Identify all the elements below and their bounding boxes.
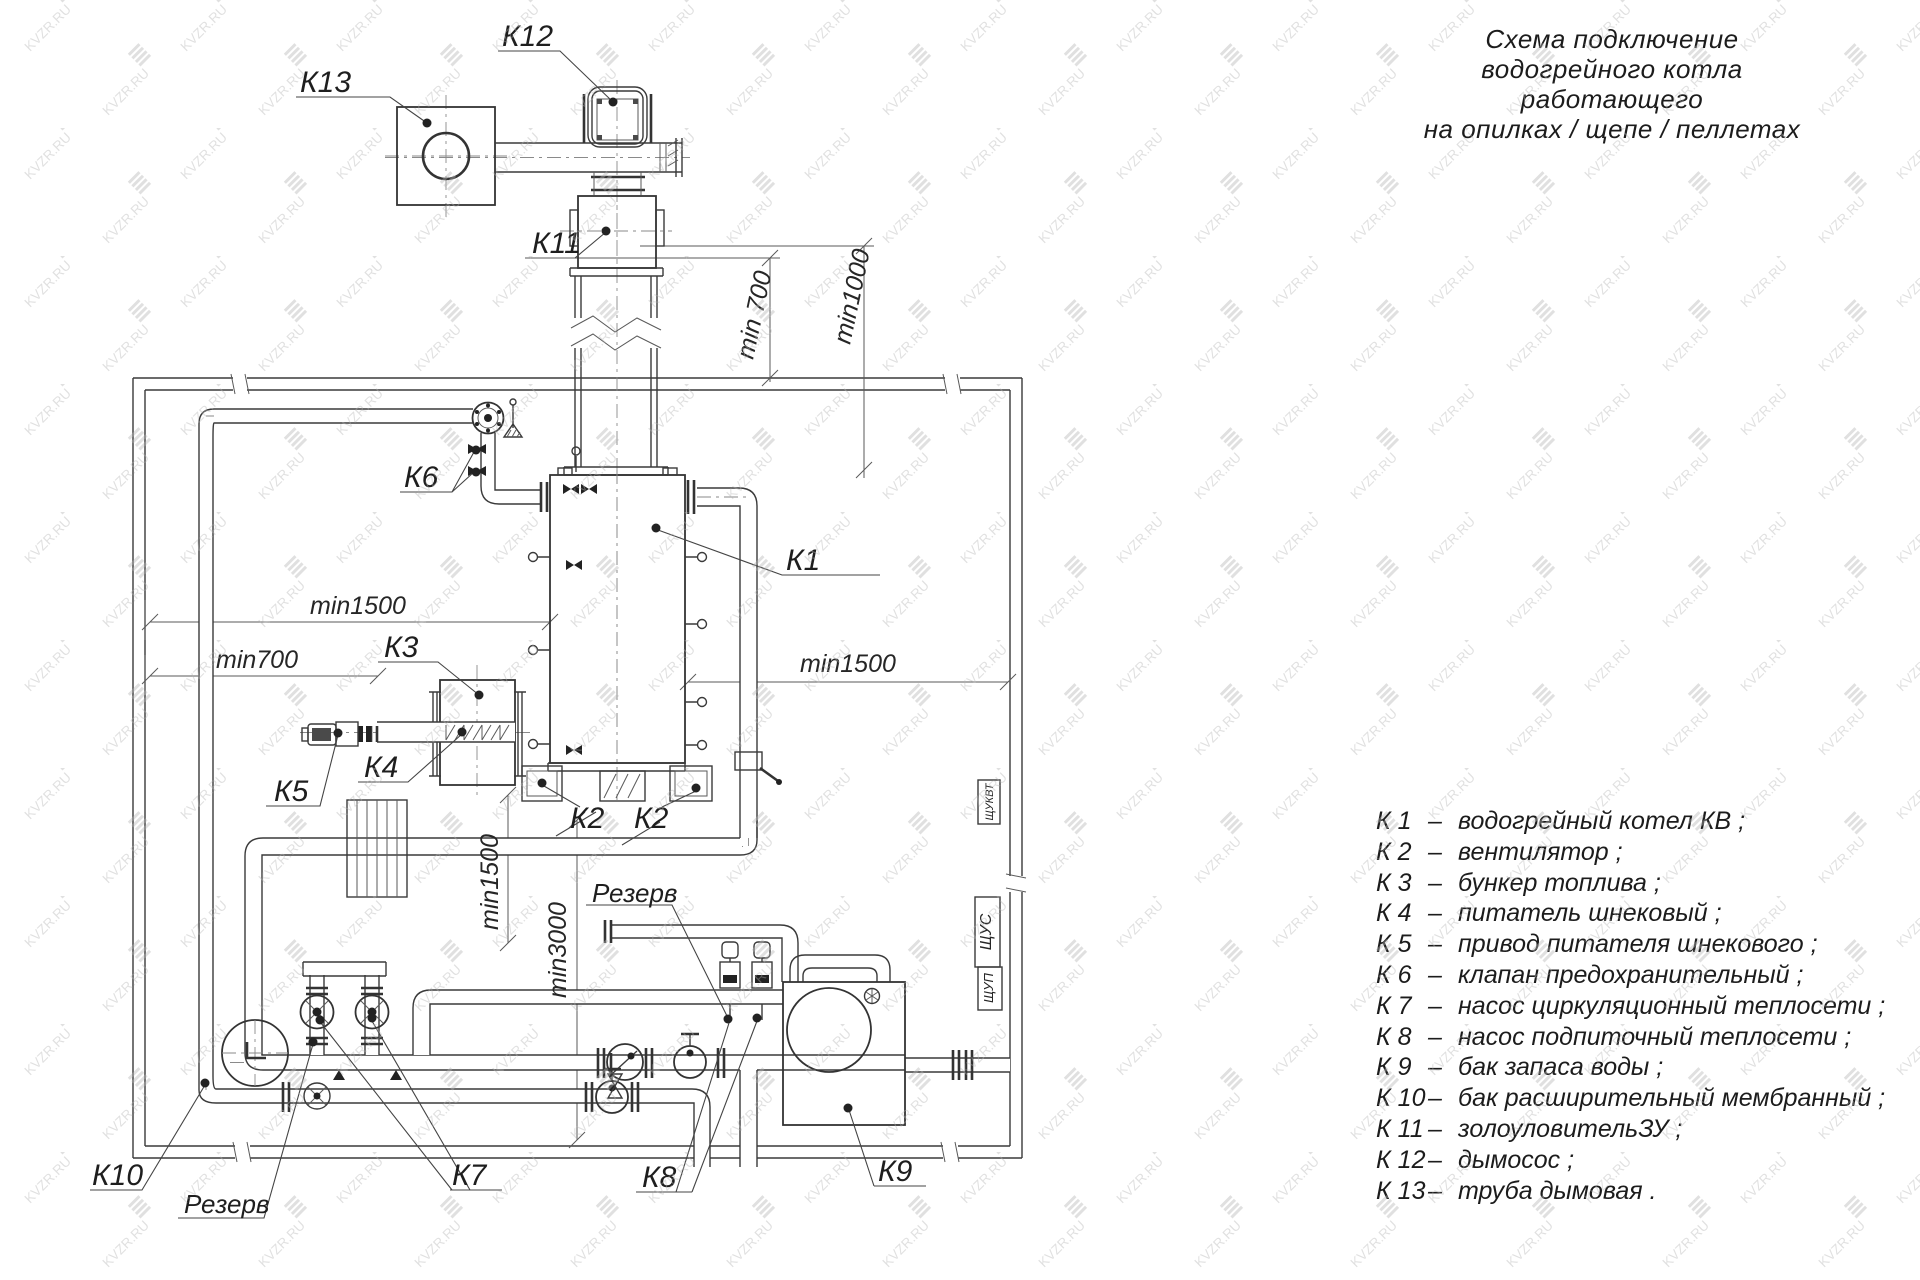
cabinet-shchukvt-label: ЩУКВТ (984, 782, 996, 820)
legend-item-k13: К 13–труба дымовая . (1376, 1176, 1896, 1207)
label-k8: К8 (642, 1161, 677, 1194)
label-k2-right: К2 (634, 802, 669, 835)
legend-id: К 3 (1376, 868, 1428, 899)
label-k11: К11 (532, 227, 581, 260)
legend-dash: – (1428, 837, 1458, 868)
legend-dash: – (1428, 1052, 1458, 1083)
dimension-lines (142, 238, 1016, 1148)
label-k12: К12 (502, 20, 553, 53)
legend-text: клапан предохранительный ; (1458, 960, 1803, 991)
legend-item-k7: К 7–насос циркуляционный теплосети ; (1376, 991, 1896, 1022)
legend-item-k11: К 11–золоуловительЗУ ; (1376, 1114, 1896, 1145)
legend-id: К 5 (1376, 929, 1428, 960)
label-k10: К10 (92, 1159, 143, 1192)
drawing-title: Схема подключение водогрейного котла раб… (1392, 24, 1832, 144)
legend-dash: – (1428, 929, 1458, 960)
label-k6: К6 (404, 461, 439, 494)
legend-id: К 2 (1376, 837, 1428, 868)
legend-text: золоуловительЗУ ; (1458, 1114, 1682, 1145)
legend-item-k1: К 1–водогрейный котел КВ ; (1376, 806, 1896, 837)
water-tank-k9 (783, 982, 905, 1125)
title-line-1: Схема подключение (1392, 24, 1832, 54)
dim-min1500-vert: min1500 (476, 834, 504, 930)
legend-text: бак расширительный мембранный ; (1458, 1083, 1885, 1114)
legend-text: бункер топлива ; (1458, 868, 1661, 899)
legend-item-k8: К 8–насос подпиточный теплосети ; (1376, 1022, 1896, 1053)
label-k9: К9 (878, 1155, 913, 1188)
legend-text: питатель шнековый ; (1458, 898, 1722, 929)
legend-text: насос циркуляционный теплосети ; (1458, 991, 1885, 1022)
legend-item-k3: К 3–бункер топлива ; (1376, 868, 1896, 899)
legend-item-k5: К 5–привод питателя шнекового ; (1376, 929, 1896, 960)
legend-id: К 6 (1376, 960, 1428, 991)
cabinet-shchup-label: ЩУП (981, 973, 996, 1003)
legend-dash: – (1428, 1083, 1458, 1114)
legend-id: К 1 (1376, 806, 1428, 837)
legend-text: труба дымовая . (1458, 1176, 1657, 1207)
dim-min1500-right: min1500 (800, 650, 896, 678)
label-k13: К13 (300, 66, 351, 99)
legend-dash: – (1428, 991, 1458, 1022)
legend-text: насос подпиточный теплосети ; (1458, 1022, 1851, 1053)
room-walls (133, 374, 1026, 1162)
legend-item-k12: К 12–дымосос ; (1376, 1145, 1896, 1176)
legend-id: К 10 (1376, 1083, 1428, 1114)
legend-item-k10: К 10–бак расширительный мембранный ; (1376, 1083, 1896, 1114)
dim-min1500-left: min1500 (310, 592, 406, 620)
legend-dash: – (1428, 1145, 1458, 1176)
cabinets: ЩУКВТ ЩУС ЩУП (975, 780, 1002, 1010)
legend-id: К 12 (1376, 1145, 1428, 1176)
legend-id: К 11 (1376, 1114, 1428, 1145)
pump-valve-cluster (283, 942, 772, 1113)
legend-text: водогрейный котел КВ ; (1458, 806, 1745, 837)
label-k3: К3 (384, 631, 419, 664)
label-k2-left: К2 (570, 802, 605, 835)
label-k1: К1 (786, 544, 820, 577)
label-k5: К5 (274, 775, 309, 808)
dim-min700-left: min700 (216, 646, 298, 674)
label-reserve-mid: Резерв (592, 878, 678, 908)
legend-dash: – (1428, 1022, 1458, 1053)
leader-lines (90, 51, 926, 1218)
boiler-k1 (522, 447, 712, 801)
legend-text: привод питателя шнекового ; (1458, 929, 1818, 960)
dim-min3000-vert: min3000 (544, 902, 572, 998)
title-line-3: на опилках / щепе / пеллетах (1392, 114, 1832, 144)
legend-id: К 8 (1376, 1022, 1428, 1053)
diagram-labels: К13 К12 К11 К1 К6 К3 К4 К5 К2 К2 К7 К8 К… (92, 20, 913, 1219)
expansion-tank-k10 (222, 1020, 288, 1086)
legend-id: К 13 (1376, 1176, 1428, 1207)
legend-dash: – (1428, 898, 1458, 929)
cabinet-shchus-label: ЩУС (978, 913, 995, 950)
legend: К 1–водогрейный котел КВ ; К 2–вентилято… (1376, 806, 1896, 1206)
legend-id: К 9 (1376, 1052, 1428, 1083)
label-k7: К7 (452, 1159, 488, 1192)
label-reserve-bottom: Резерв (184, 1189, 270, 1219)
legend-id: К 4 (1376, 898, 1428, 929)
legend-item-k2: К 2–вентилятор ; (1376, 837, 1896, 868)
dim-min1000-top: min1000 (828, 247, 875, 347)
legend-text: вентилятор ; (1458, 837, 1623, 868)
legend-dash: – (1428, 806, 1458, 837)
legend-text: бак запаса воды ; (1458, 1052, 1663, 1083)
legend-id: К 7 (1376, 991, 1428, 1022)
legend-item-k9: К 9–бак запаса воды ; (1376, 1052, 1896, 1083)
legend-dash: – (1428, 868, 1458, 899)
boiler-connection-scheme: ЩУКВТ ЩУС ЩУП (0, 0, 1920, 1280)
title-line-2: водогрейного котла работающего (1392, 54, 1832, 114)
legend-item-k6: К 6–клапан предохранительный ; (1376, 960, 1896, 991)
legend-dash: – (1428, 1176, 1458, 1207)
legend-item-k4: К 4–питатель шнековый ; (1376, 898, 1896, 929)
legend-text: дымосос ; (1458, 1145, 1574, 1176)
label-k4: К4 (364, 751, 398, 784)
legend-dash: – (1428, 1114, 1458, 1145)
legend-dash: – (1428, 960, 1458, 991)
